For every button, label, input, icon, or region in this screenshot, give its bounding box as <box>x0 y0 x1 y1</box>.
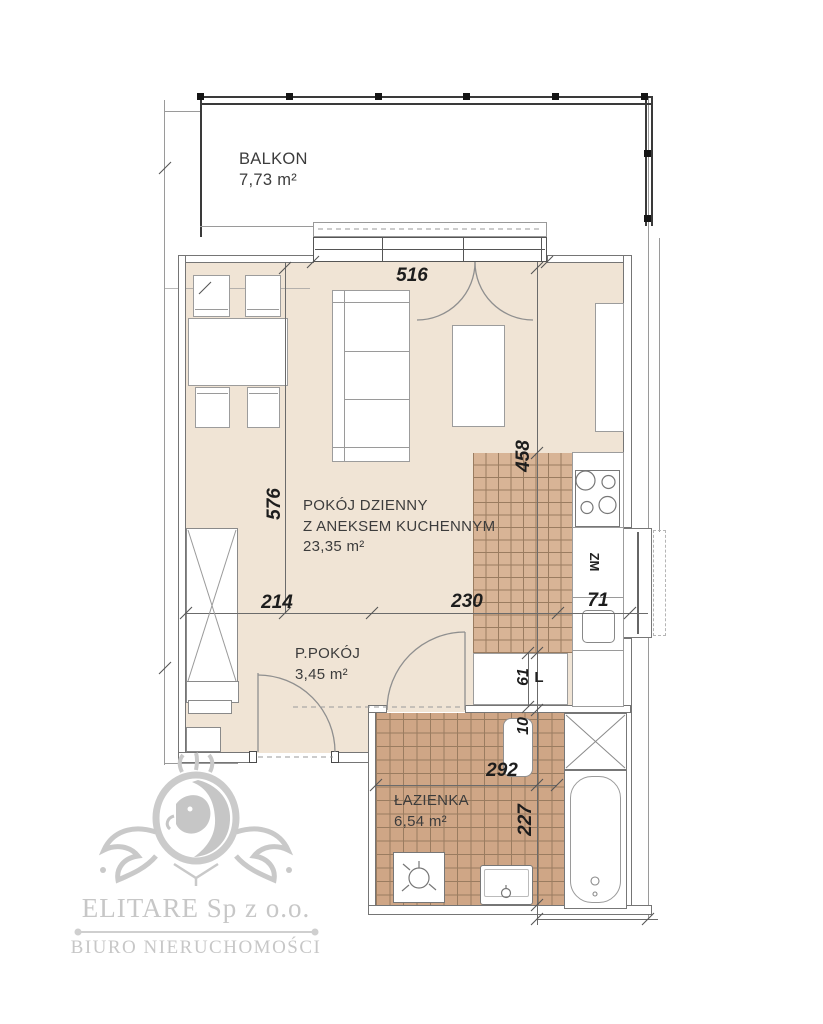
watermark-divider <box>75 929 319 936</box>
room-label-balcony: BALKON 7,73 m² <box>239 149 308 191</box>
dim-10: 10 <box>514 708 534 744</box>
shower-drain-symbol <box>402 861 436 891</box>
balcony-area: 7,73 m² <box>239 170 308 191</box>
washing-machine-cross <box>566 715 625 768</box>
room-label-bathroom: ŁAZIENKA 6,54 m² <box>394 791 469 832</box>
balcony-name: BALKON <box>239 149 308 170</box>
room-label-hallway: P.POKÓJ 3,45 m² <box>295 644 360 685</box>
bathroom-area: 6,54 m² <box>394 812 469 833</box>
watermark-tagline: BIURO NIERUCHOMOŚCI <box>63 937 329 959</box>
dim-292: 292 <box>477 761 527 781</box>
dim-516: 516 <box>380 266 444 286</box>
dishwasher-label: ZM <box>584 548 604 576</box>
dim-71: 71 <box>573 591 623 611</box>
bathroom-name: ŁAZIENKA <box>394 791 469 812</box>
bathtub-drain <box>591 877 599 896</box>
living-area: 23,35 m² <box>303 537 495 558</box>
wardrobe-cross <box>188 530 236 681</box>
living-name-line1: POKÓJ DZIENNY <box>303 496 495 517</box>
stove-burners <box>576 471 616 514</box>
washbasin-faucet <box>502 885 511 898</box>
dim-230: 230 <box>442 592 492 612</box>
room-label-living: POKÓJ DZIENNY Z ANEKSEM KUCHENNYM 23,35 … <box>303 496 495 558</box>
dim-227: 227 <box>516 797 536 843</box>
floor-plan: BALKON 7,73 m² POKÓJ DZIENNY Z ANEKSEM K… <box>0 0 823 1024</box>
dim-576: 576 <box>265 481 285 527</box>
watermark-company: ELITARE Sp z o.o. <box>70 893 322 924</box>
watermark-lion-emblem <box>100 753 292 886</box>
hallway-area: 3,45 m² <box>295 665 360 686</box>
fridge-label: L <box>531 668 547 688</box>
hallway-name: P.POKÓJ <box>295 644 360 665</box>
dim-214: 214 <box>252 593 302 613</box>
living-name-line2: Z ANEKSEM KUCHENNYM <box>303 517 495 538</box>
dim-458: 458 <box>514 433 534 479</box>
bathroom-door <box>387 632 465 710</box>
